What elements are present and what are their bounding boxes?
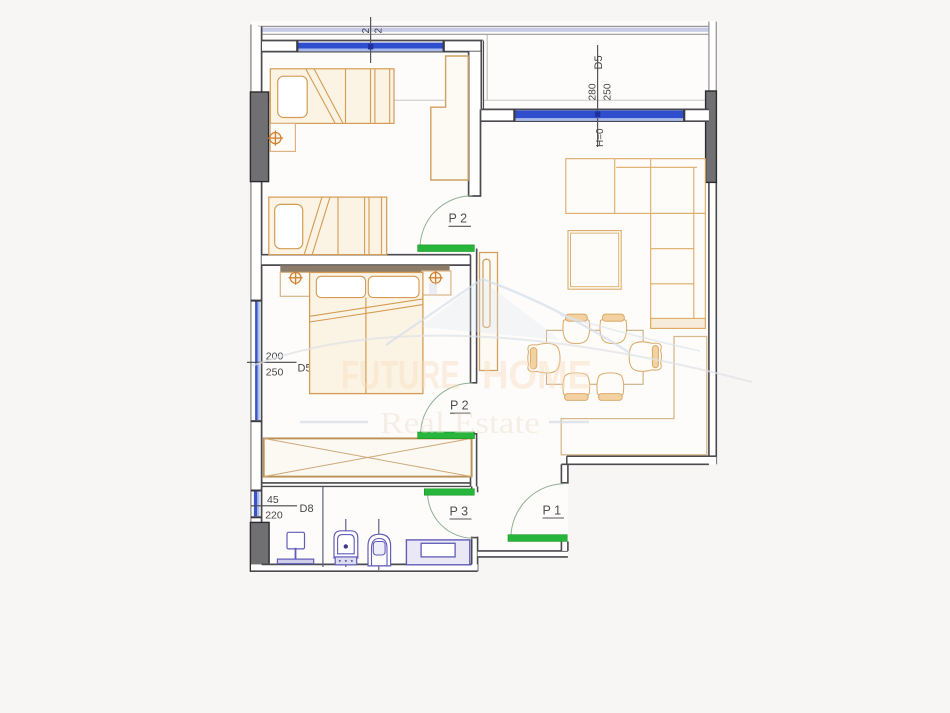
svg-text:2: 2 bbox=[374, 28, 385, 34]
svg-text:280: 280 bbox=[588, 83, 599, 100]
svg-text:250: 250 bbox=[266, 366, 284, 378]
svg-text:P 1: P 1 bbox=[543, 504, 562, 518]
svg-text:HOME: HOME bbox=[482, 354, 592, 398]
svg-text:250: 250 bbox=[603, 83, 614, 100]
svg-text:D5: D5 bbox=[593, 55, 605, 69]
svg-text:FUTURE: FUTURE bbox=[341, 354, 460, 398]
svg-text:2: 2 bbox=[361, 28, 372, 34]
svg-text:H=0: H=0 bbox=[595, 128, 606, 147]
svg-text:45: 45 bbox=[267, 494, 279, 506]
svg-text:D8: D8 bbox=[300, 503, 314, 515]
svg-text:220: 220 bbox=[265, 510, 283, 522]
svg-text:P 2: P 2 bbox=[449, 212, 468, 226]
svg-text:Real Estate: Real Estate bbox=[380, 405, 540, 440]
svg-text:P 3: P 3 bbox=[450, 505, 469, 519]
